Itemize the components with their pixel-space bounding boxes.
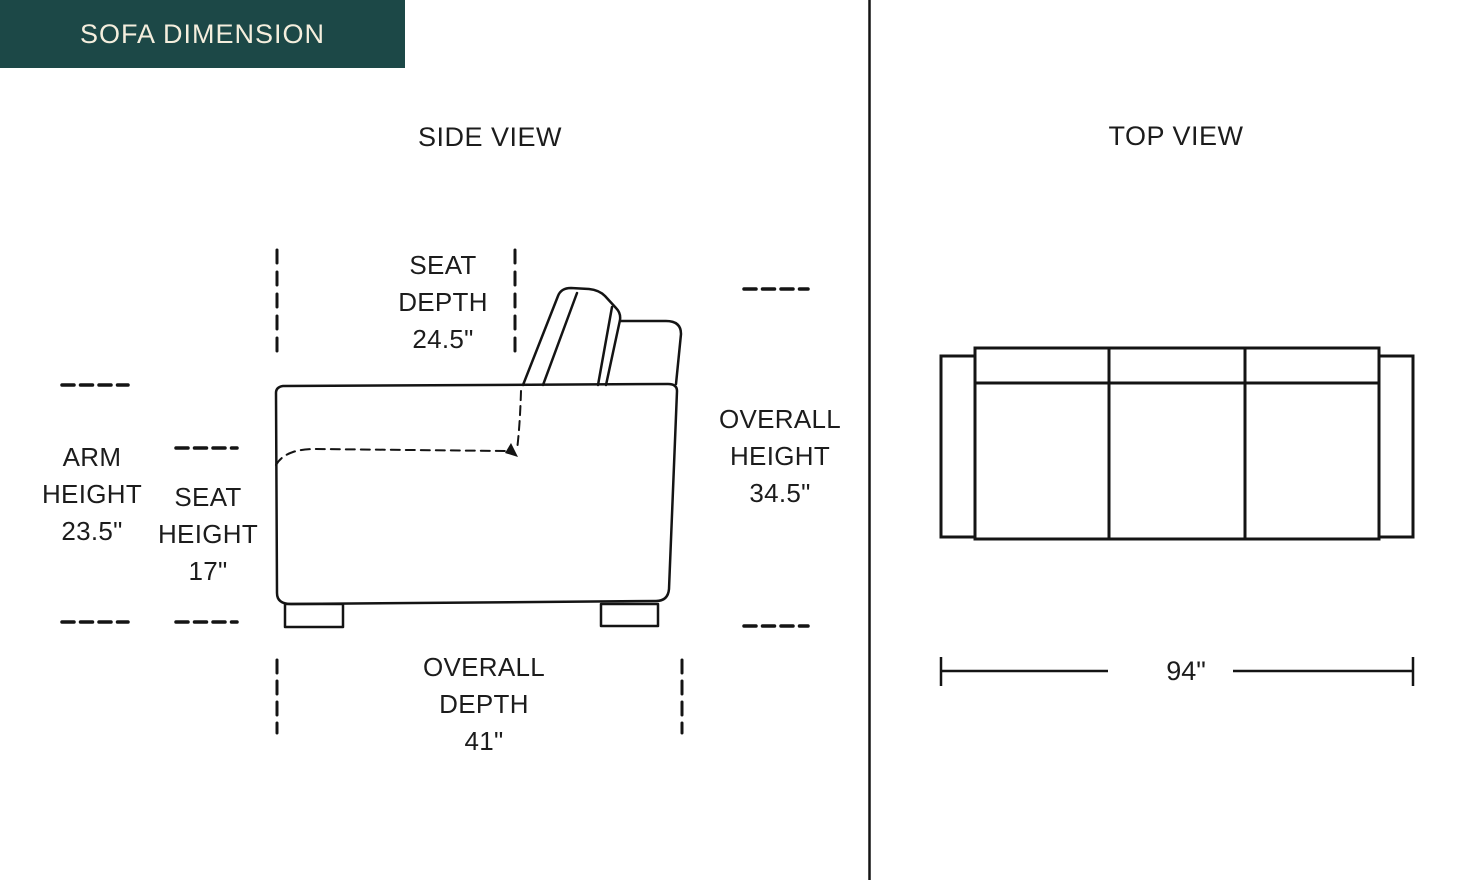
- seat-outline-arrowhead: [505, 443, 518, 457]
- seat-depth-label: SEAT DEPTH 24.5": [398, 247, 488, 358]
- top-view-arm-right: [1379, 356, 1413, 537]
- page-title: SOFA DIMENSION: [80, 19, 325, 50]
- sofa-body: [276, 384, 677, 604]
- top-view-body: [975, 348, 1379, 539]
- sofa-foot-left: [285, 604, 343, 627]
- backrest-seam-right: [598, 307, 612, 385]
- sofa-foot-right: [601, 604, 658, 626]
- armrest: [620, 321, 681, 384]
- sofa-dimension-diagram: SOFA DIMENSION SIDE VIEW TOP VIEW SEAT D…: [0, 0, 1480, 880]
- header-banner: SOFA DIMENSION: [0, 0, 405, 68]
- overall-height-label: OVERALL HEIGHT 34.5": [719, 401, 841, 512]
- top-view-title: TOP VIEW: [1108, 121, 1243, 152]
- overall-depth-label: OVERALL DEPTH 41": [423, 649, 545, 760]
- top-view-drawing: [941, 348, 1413, 686]
- overall-width-label: 94": [1166, 656, 1206, 687]
- top-view-arm-left: [941, 356, 975, 537]
- seat-height-label: SEAT HEIGHT 17": [158, 479, 258, 590]
- seat-outline-dashed: [276, 391, 521, 465]
- backrest-seam-left: [543, 293, 577, 385]
- arm-height-label: ARM HEIGHT 23.5": [42, 439, 142, 550]
- side-view-title: SIDE VIEW: [418, 122, 562, 153]
